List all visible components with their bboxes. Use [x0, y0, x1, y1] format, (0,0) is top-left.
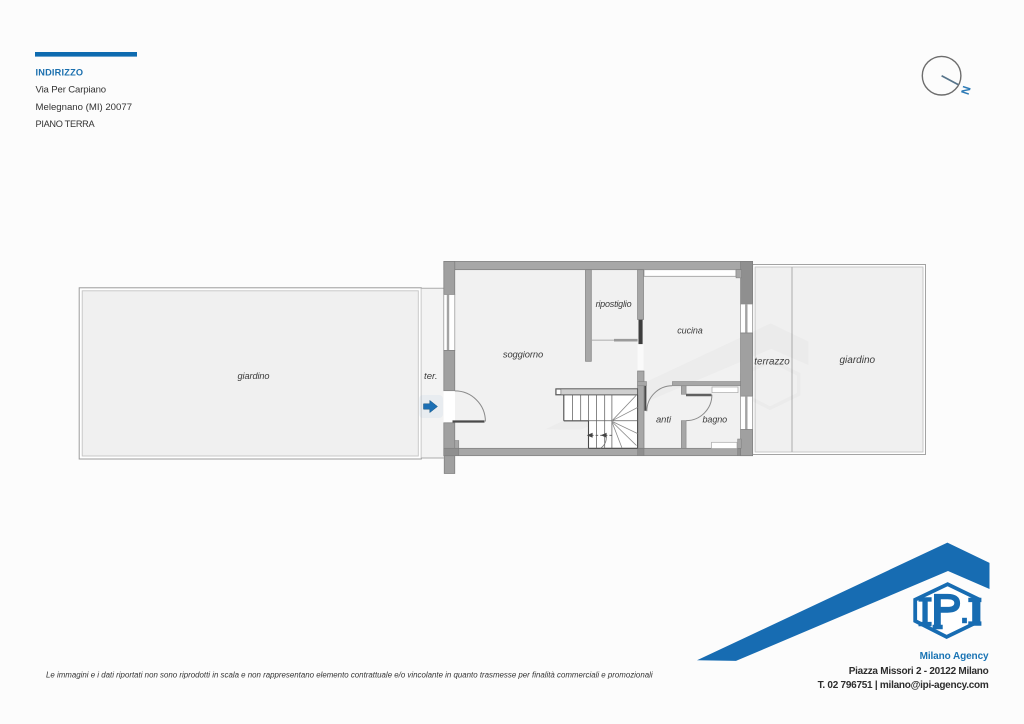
svg-text:soggiorno: soggiorno — [503, 349, 543, 360]
svg-text:ter.: ter. — [424, 371, 438, 382]
svg-text:Melegnano (MI) 20077: Melegnano (MI) 20077 — [36, 102, 133, 113]
svg-text:Via Per Carpiano: Via Per Carpiano — [36, 85, 107, 96]
svg-text:bagno: bagno — [703, 415, 728, 425]
svg-text:Le immagini e i dati riportati: Le immagini e i dati riportati non sono … — [46, 671, 653, 680]
svg-text:N: N — [958, 84, 972, 96]
svg-text:anti: anti — [656, 414, 672, 425]
svg-text:PIANO TERRA: PIANO TERRA — [36, 119, 96, 129]
svg-text:giardino: giardino — [238, 371, 270, 381]
svg-text:ripostiglio: ripostiglio — [596, 299, 632, 309]
svg-text:Milano Agency: Milano Agency — [920, 651, 989, 662]
svg-text:T. 02 796751 | milano@ipi-agen: T. 02 796751 | milano@ipi-agency.com — [818, 680, 989, 691]
svg-text:Piazza Missori 2 - 20122 Milan: Piazza Missori 2 - 20122 Milano — [849, 666, 989, 677]
svg-text:INDIRIZZO: INDIRIZZO — [36, 67, 84, 77]
svg-text:cucina: cucina — [677, 326, 703, 336]
svg-text:giardino: giardino — [840, 355, 876, 366]
